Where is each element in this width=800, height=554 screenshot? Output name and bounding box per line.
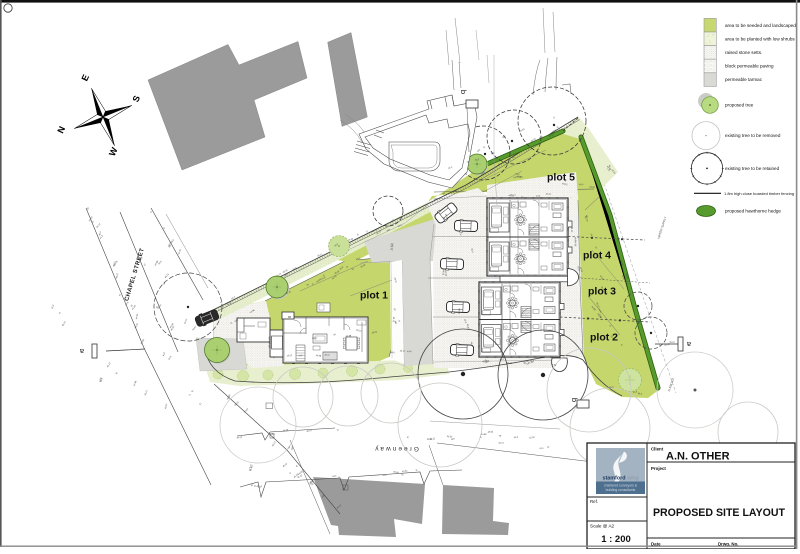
svg-text:45.12: 45.12 xyxy=(324,355,330,357)
svg-text:area to be planted with low sh: area to be planted with low shrubs xyxy=(725,36,795,41)
svg-text:Ref.: Ref. xyxy=(590,499,598,504)
svg-text:Project: Project xyxy=(651,466,666,471)
svg-text:45.07: 45.07 xyxy=(669,342,675,344)
svg-text:PROPOSED SITE LAYOUT: PROPOSED SITE LAYOUT xyxy=(653,507,786,519)
svg-text:45.12: 45.12 xyxy=(570,227,572,233)
svg-text:b: b xyxy=(570,398,579,402)
svg-text:raised stone setts.: raised stone setts. xyxy=(725,50,762,55)
svg-text:plot 4: plot 4 xyxy=(583,250,611,262)
svg-text:plot 5: plot 5 xyxy=(547,172,575,184)
svg-text:proposed tree: proposed tree xyxy=(725,103,754,108)
svg-text:existing tree to be removed: existing tree to be removed xyxy=(725,133,781,138)
svg-text:45.21: 45.21 xyxy=(312,338,318,340)
svg-text:proposed hawthorne hedge: proposed hawthorne hedge xyxy=(725,209,781,214)
svg-text:plot 1: plot 1 xyxy=(360,290,388,302)
svg-text:stamford: stamford xyxy=(602,476,625,482)
svg-text:45.21: 45.21 xyxy=(546,194,552,196)
svg-text:44.88: 44.88 xyxy=(574,241,576,247)
svg-text:wing: wing xyxy=(626,476,638,482)
svg-text:45.12: 45.12 xyxy=(506,363,512,365)
svg-text:block permeable paving: block permeable paving xyxy=(725,64,774,69)
svg-text:44.88: 44.88 xyxy=(442,269,444,275)
svg-text:permeable tarmac: permeable tarmac xyxy=(725,77,763,82)
svg-text:45.21: 45.21 xyxy=(498,442,504,444)
svg-text:chartered surveyors &: chartered surveyors & xyxy=(604,484,638,488)
svg-text:Scale @ A2: Scale @ A2 xyxy=(590,524,615,529)
svg-text:44.88: 44.88 xyxy=(481,434,487,436)
svg-text:Client: Client xyxy=(651,447,664,452)
svg-text:A 63: A 63 xyxy=(390,243,395,250)
svg-text:1 : 200: 1 : 200 xyxy=(601,534,631,545)
svg-text:plot 3: plot 3 xyxy=(588,286,616,298)
svg-text:44.52: 44.52 xyxy=(589,187,595,189)
svg-text:44.88: 44.88 xyxy=(457,308,459,314)
svg-text:plot 2: plot 2 xyxy=(590,332,618,344)
svg-text:A.N. OTHER: A.N. OTHER xyxy=(666,451,730,463)
svg-text:area to be seeded and landscap: area to be seeded and landscaped xyxy=(725,23,796,28)
svg-text:Greenway: Greenway xyxy=(373,445,419,452)
svg-text:building consultants: building consultants xyxy=(606,488,636,492)
svg-text:b: b xyxy=(459,90,468,94)
svg-text:existing tree to be retained: existing tree to be retained xyxy=(725,166,780,171)
svg-text:45.12: 45.12 xyxy=(400,351,406,353)
svg-text:1.8m high close boarded timber: 1.8m high close boarded timber fencing xyxy=(724,191,794,196)
